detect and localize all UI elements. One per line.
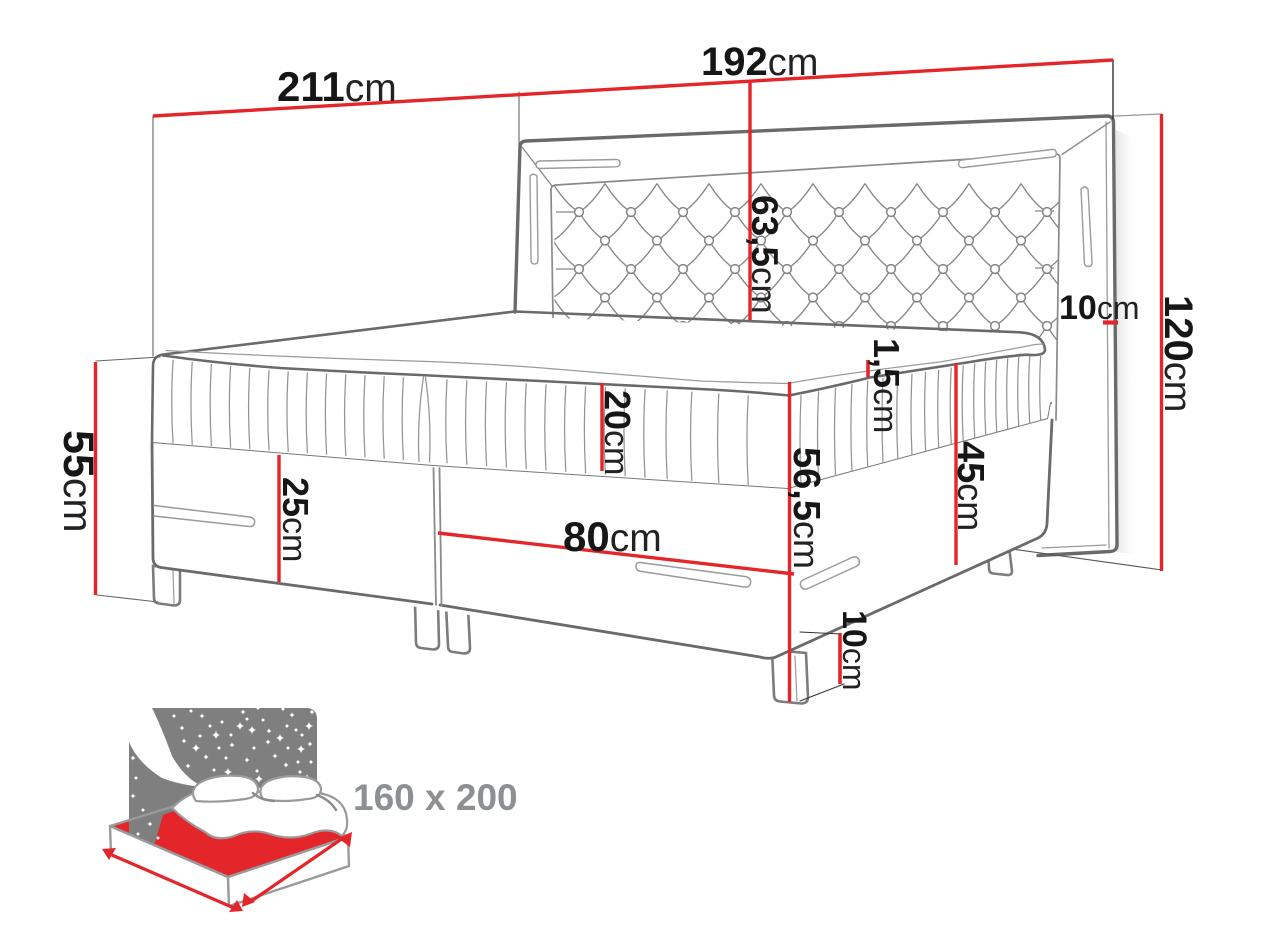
svg-text:1,5cm: 1,5cm [866, 338, 907, 433]
svg-text:63,5cm: 63,5cm [744, 195, 785, 314]
svg-text:56,5cm: 56,5cm [785, 447, 827, 569]
svg-text:25cm: 25cm [275, 477, 316, 562]
svg-text:10cm: 10cm [1059, 289, 1139, 327]
svg-text:120cm: 120cm [1156, 295, 1200, 412]
svg-text:45cm: 45cm [949, 441, 991, 531]
svg-text:80cm: 80cm [563, 513, 662, 560]
svg-text:192cm: 192cm [701, 40, 818, 84]
svg-text:211cm: 211cm [277, 63, 397, 110]
svg-text:160 x 200: 160 x 200 [353, 777, 518, 818]
svg-text:20cm: 20cm [597, 390, 638, 475]
svg-text:10cm: 10cm [835, 610, 873, 690]
svg-text:55cm: 55cm [54, 430, 102, 533]
